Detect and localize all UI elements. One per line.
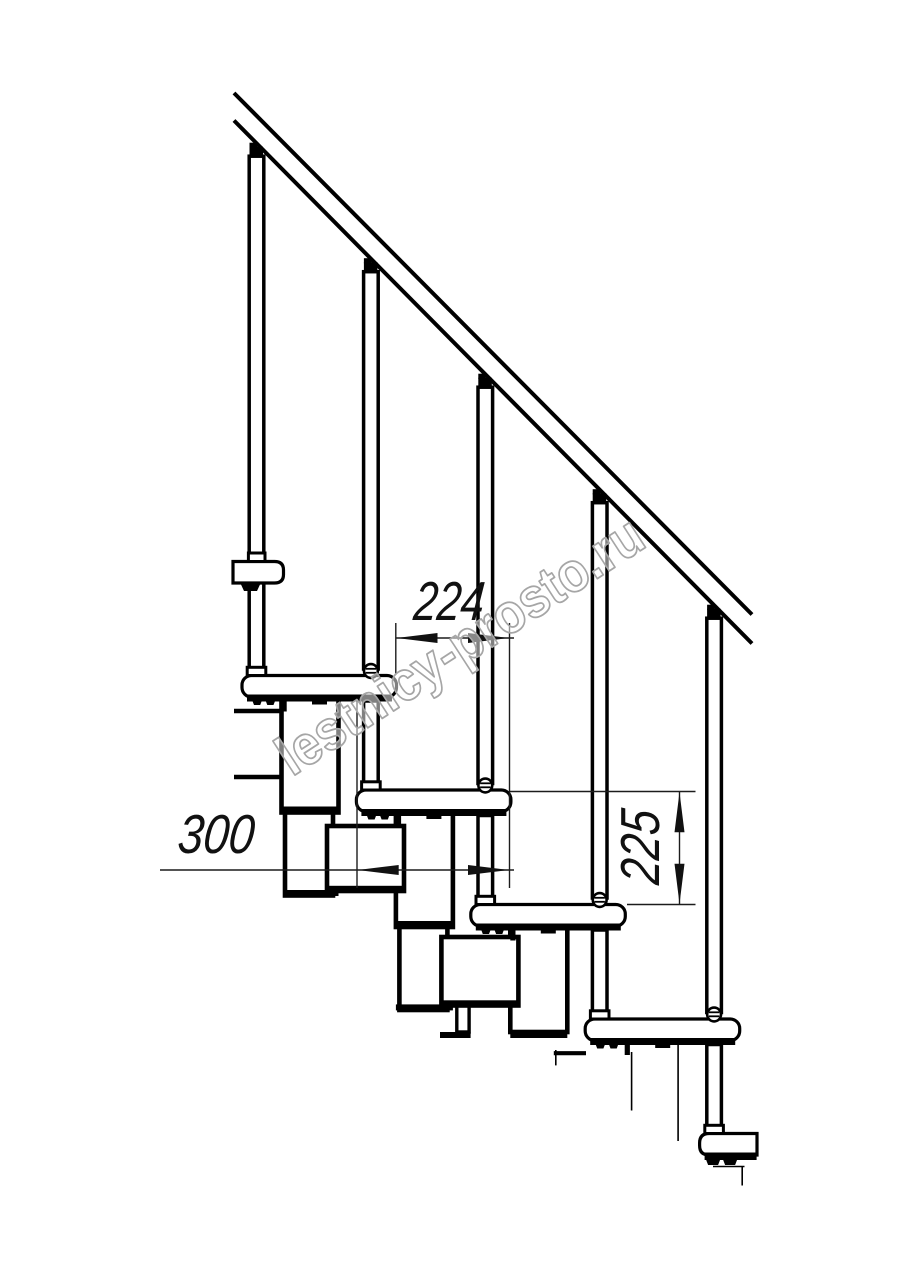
svg-text:300: 300 [175, 803, 258, 865]
svg-text:225: 225 [609, 806, 671, 888]
